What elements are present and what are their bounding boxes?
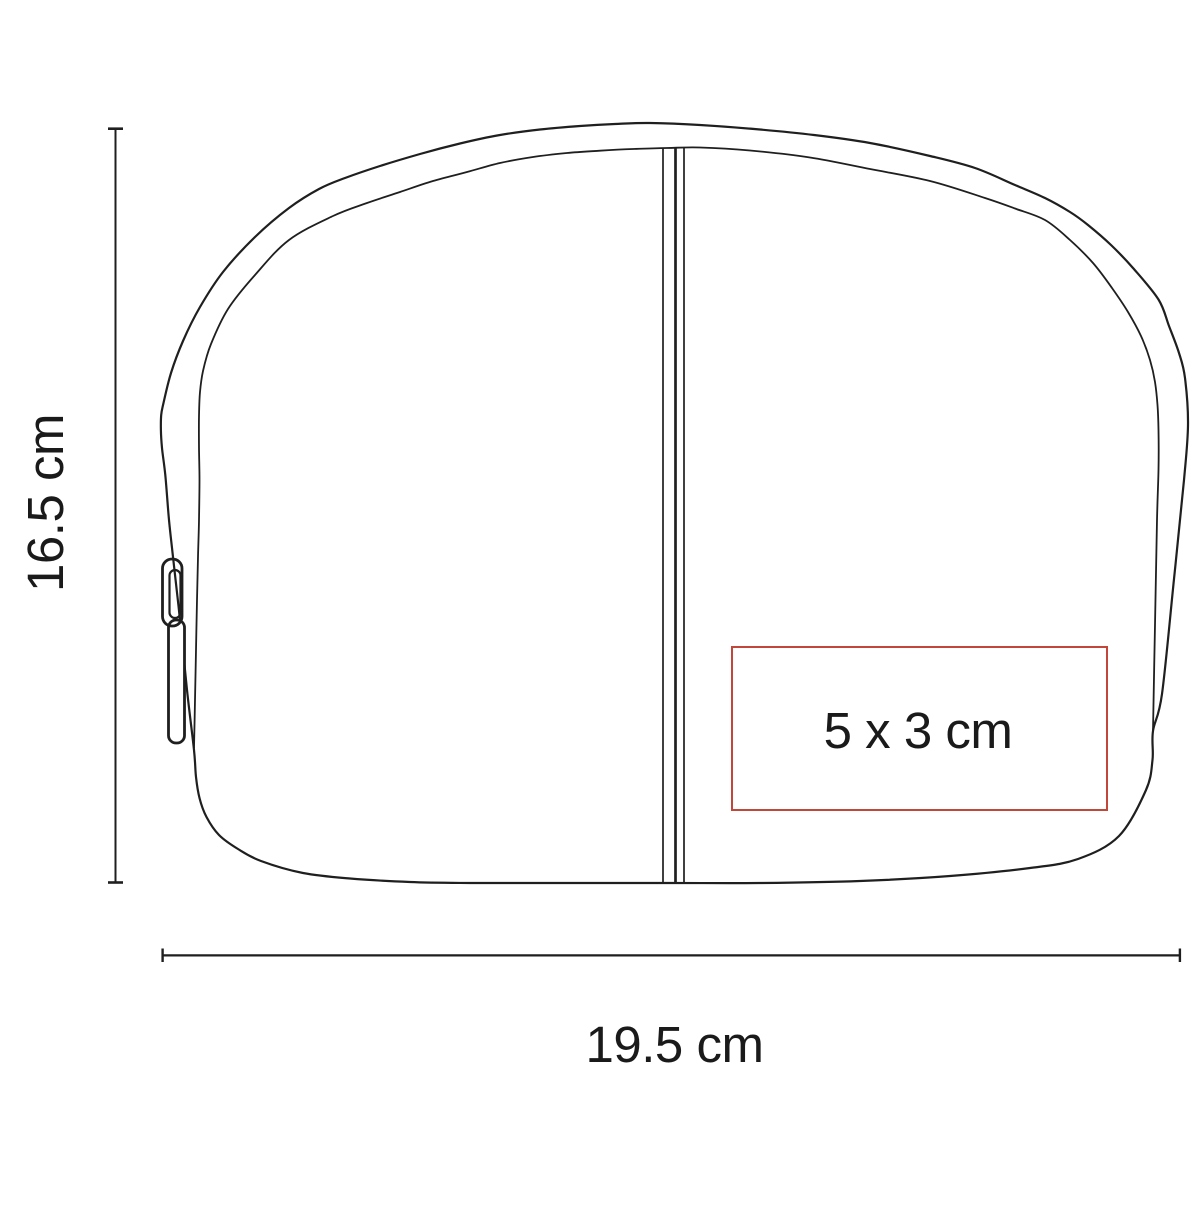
svg-text:19.5 cm: 19.5 cm xyxy=(586,1016,764,1073)
svg-text:5 x 3 cm: 5 x 3 cm xyxy=(824,702,1013,759)
svg-text:16.5 cm: 16.5 cm xyxy=(17,414,74,592)
